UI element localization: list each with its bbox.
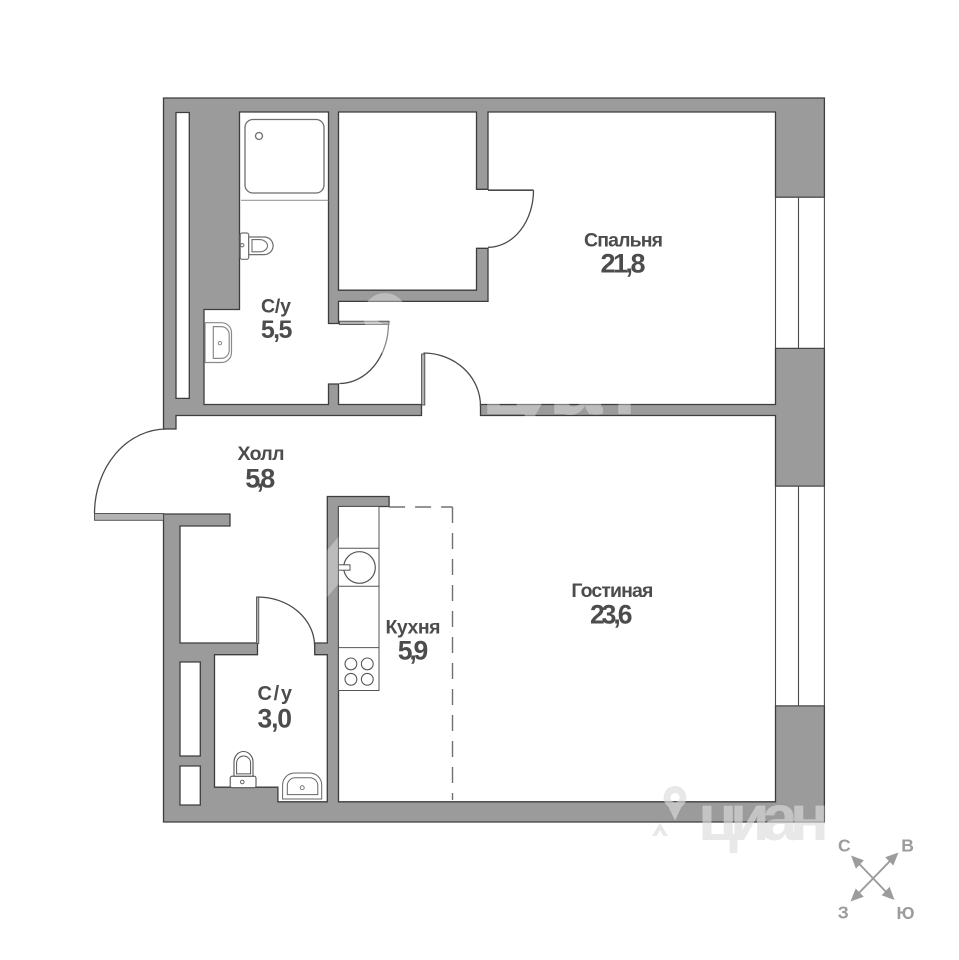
svg-text:циан: циан [481,334,637,434]
svg-text:3,0: 3,0 [258,703,293,733]
svg-text:Холл: Холл [238,443,285,465]
svg-text:Ю: Ю [896,903,914,923]
svg-text:З: З [838,903,849,923]
svg-text:5,8: 5,8 [245,464,275,494]
svg-text:циан: циан [698,781,829,854]
svg-text:5,5: 5,5 [261,316,293,344]
svg-text:С/у: С/у [258,683,293,705]
svg-text:В: В [901,836,914,856]
svg-text:5,9: 5,9 [398,636,429,666]
svg-text:С/у: С/у [261,296,291,318]
svg-text:23,6: 23,6 [590,600,633,630]
svg-text:С: С [838,836,851,856]
svg-text:21,8: 21,8 [601,249,646,279]
